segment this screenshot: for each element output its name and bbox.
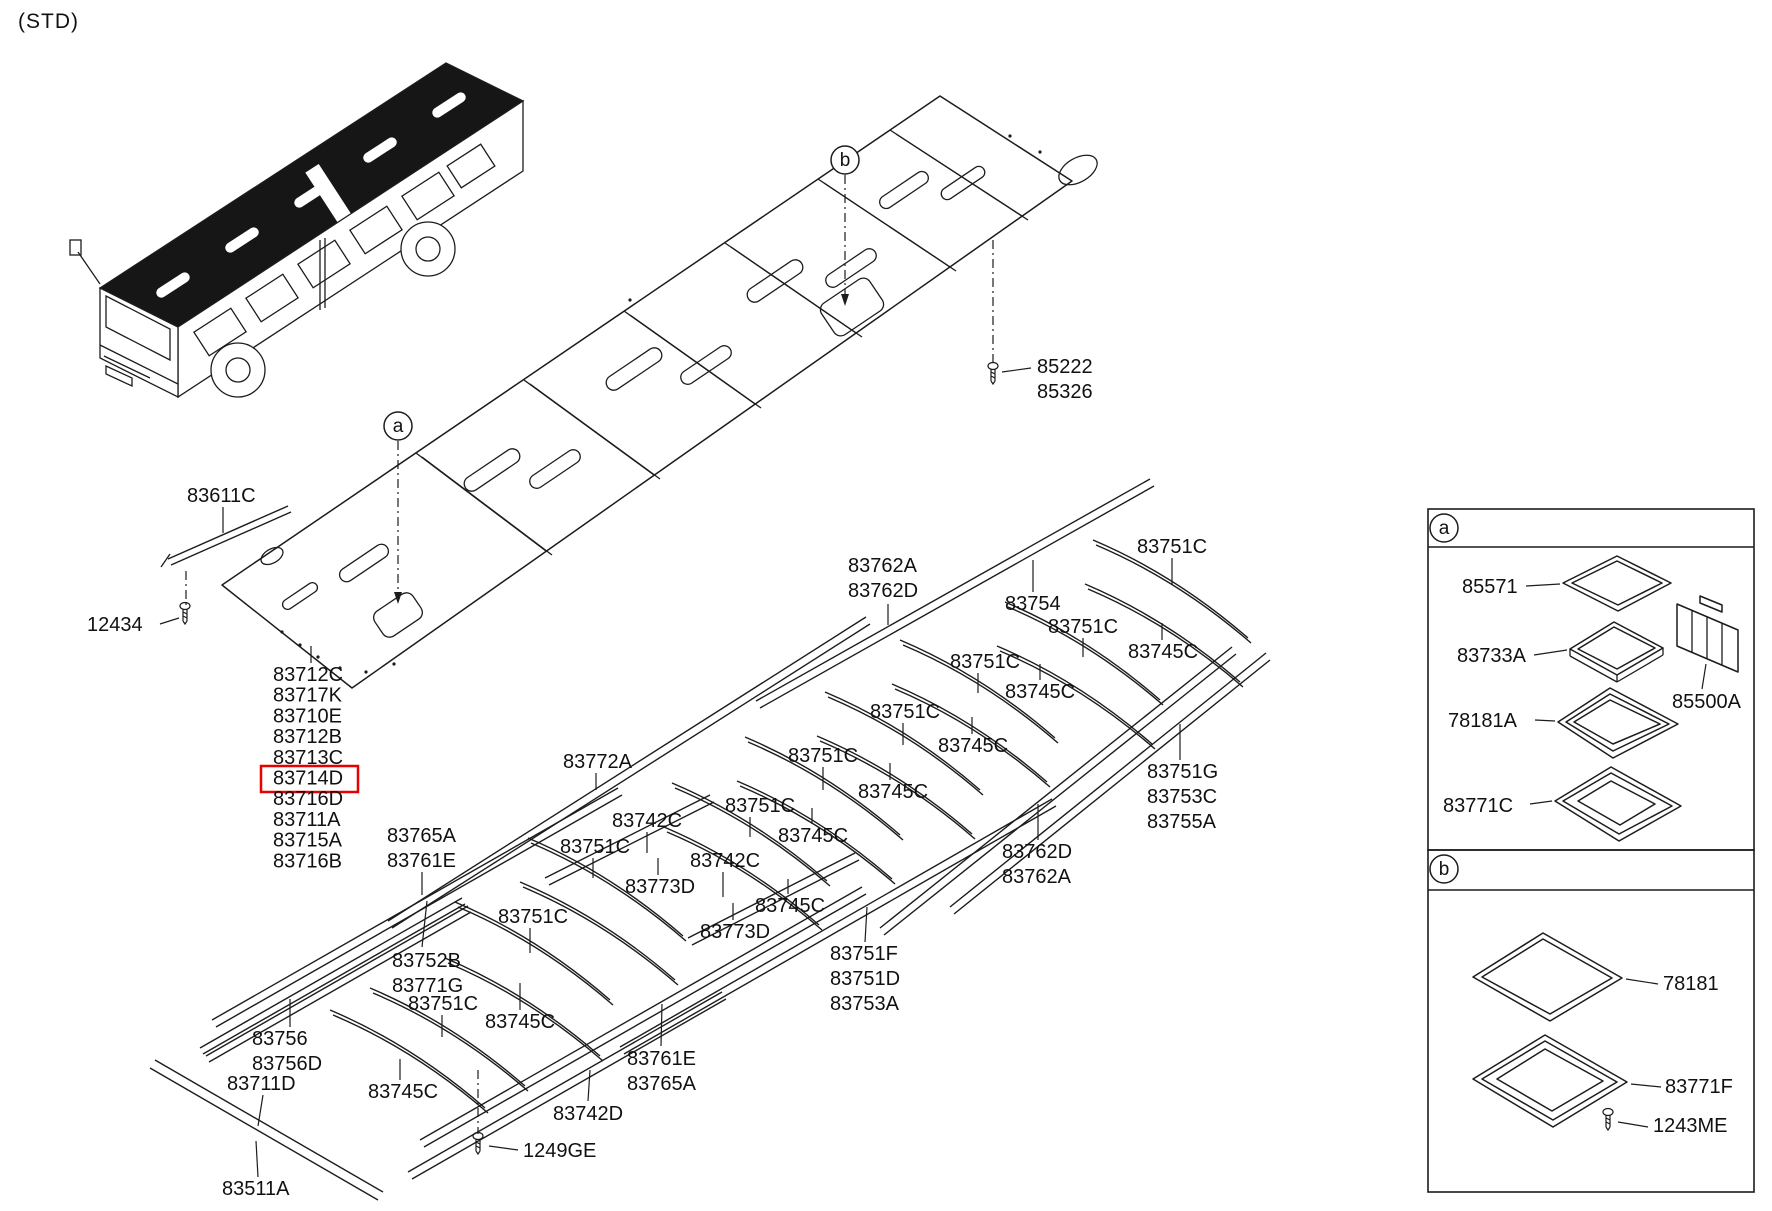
label-85571[interactable]: 85571	[1462, 576, 1518, 598]
parts-list: 83712C83717K83710E83712B83713C83714D8371…	[261, 646, 358, 872]
panel-slot	[744, 257, 805, 305]
label-83751G-83753C-83755A[interactable]: 83751G83753C83755A	[1147, 761, 1218, 833]
detail-box-b	[1428, 850, 1754, 1192]
label-83762D-83762A[interactable]: 83762D83762A	[1002, 841, 1072, 888]
label-83761E-83765A[interactable]: 83761E83765A	[627, 1048, 697, 1095]
panel-outline	[1482, 1041, 1617, 1120]
rivet-dot	[316, 655, 319, 658]
parts-list-item-83714D[interactable]: 83714D	[273, 768, 343, 790]
panel-slot	[281, 581, 320, 612]
label-83751C-8[interactable]: 83751C	[498, 906, 568, 928]
panel-outline	[1700, 596, 1722, 612]
rail-line	[168, 506, 288, 559]
bus-illustration	[70, 63, 523, 397]
label-85500A[interactable]: 85500A	[1672, 691, 1742, 713]
parts-list-item-83716B[interactable]: 83716B	[273, 850, 342, 872]
rivet-dot	[280, 630, 283, 633]
leader-line	[1618, 1122, 1648, 1127]
panel-outline	[1473, 1035, 1627, 1127]
label-83745C-8[interactable]: 83745C	[368, 1081, 438, 1103]
label-83745C-5[interactable]: 83745C	[778, 825, 848, 847]
label-83745C-7[interactable]: 83745C	[485, 1011, 555, 1033]
rivet-dot	[1038, 150, 1041, 153]
leader-line	[1530, 801, 1552, 804]
leader-line	[160, 618, 179, 624]
label-12434[interactable]: 12434	[87, 614, 143, 636]
label-83773D-1[interactable]: 83773D	[625, 876, 695, 898]
callout-arrowhead	[841, 294, 849, 306]
leader-line	[588, 1070, 590, 1101]
label-83756-83756D[interactable]: 8375683756D	[252, 1028, 322, 1075]
parts-list-item-83717K[interactable]: 83717K	[273, 685, 343, 707]
panel-outline	[1574, 700, 1660, 744]
rail-line	[171, 512, 291, 565]
panel-outline	[1572, 561, 1662, 605]
panel-slot	[678, 343, 734, 387]
label-83742C-1[interactable]: 83742C	[612, 810, 682, 832]
panel-outline	[1570, 622, 1663, 675]
leader-line	[489, 1146, 518, 1150]
label-83611C[interactable]: 83611C	[187, 485, 256, 507]
leader-line	[1002, 368, 1031, 372]
label-83745C-1[interactable]: 83745C	[1128, 641, 1198, 663]
leader-line	[865, 907, 867, 942]
label-83771C[interactable]: 83771C	[1443, 795, 1513, 817]
bus-mirror	[70, 240, 81, 255]
label-83773D-2[interactable]: 83773D	[700, 921, 770, 943]
panel-slot	[371, 590, 426, 641]
leader-line	[661, 1004, 662, 1046]
label-83751C-6[interactable]: 83751C	[725, 795, 795, 817]
parts-diagram-page: (STD)	[0, 0, 1772, 1211]
detail-line	[630, 315, 761, 408]
screw-85222-icon	[988, 363, 998, 385]
detail-line	[1570, 656, 1617, 682]
leader-line	[1626, 979, 1658, 984]
label-83751C-7[interactable]: 83751C	[560, 836, 630, 858]
callout-letter-a: a	[1439, 518, 1450, 539]
label-83765A-83761E[interactable]: 83765A83761E	[387, 825, 457, 872]
label-83745C-3[interactable]: 83745C	[938, 735, 1008, 757]
label-83762A-83762D[interactable]: 83762A83762D	[848, 555, 918, 602]
callout-letter-a: a	[393, 416, 404, 437]
exploded-parts-diagram: abab 83611C12434852228532683762A83762D83…	[0, 0, 1772, 1211]
roof-bow	[1088, 589, 1243, 687]
parts-list-item-83713C[interactable]: 83713C	[273, 747, 343, 769]
panel-slot	[939, 164, 987, 202]
label-83754[interactable]: 83754	[1005, 593, 1061, 615]
callout-letter-b: b	[840, 150, 851, 171]
rivet-dot	[628, 298, 631, 301]
parts-list-item-83712B[interactable]: 83712B	[273, 726, 342, 748]
bus-mirror-arm	[78, 252, 100, 284]
label-83772A[interactable]: 83772A	[563, 751, 633, 773]
panel-outline	[1473, 933, 1622, 1021]
label-83742C-2[interactable]: 83742C	[690, 850, 760, 872]
leader-line	[1526, 584, 1560, 586]
label-1243ME[interactable]: 1243ME	[1653, 1115, 1728, 1137]
label-83742D[interactable]: 83742D	[553, 1103, 623, 1125]
leader-line	[1534, 650, 1567, 655]
parts-list-item-83710E[interactable]: 83710E	[273, 705, 342, 727]
panel-hole	[1054, 149, 1102, 191]
panel-slot	[603, 345, 664, 393]
detail-line	[422, 457, 552, 555]
rivet-dot	[392, 662, 395, 665]
panel-slot	[527, 447, 583, 491]
label-85222-85326[interactable]: 8522285326	[1037, 356, 1093, 403]
label-83751C-2[interactable]: 83751C	[1048, 616, 1118, 638]
label-83751F-83751D-83753A[interactable]: 83751F83751D83753A	[830, 943, 900, 1015]
parts-list-item-83715A[interactable]: 83715A	[273, 830, 343, 852]
parts-list-item-83716D[interactable]: 83716D	[273, 788, 343, 810]
parts-list-item-83711A[interactable]: 83711A	[273, 809, 341, 831]
label-83751C-1[interactable]: 83751C	[1137, 536, 1207, 558]
label-83745C-2[interactable]: 83745C	[1005, 681, 1075, 703]
leader-line	[256, 1141, 258, 1177]
label-1249GE[interactable]: 1249GE	[523, 1140, 596, 1162]
panel-slot	[461, 446, 522, 494]
rail-line	[950, 653, 1266, 907]
label-83733A[interactable]: 83733A	[1457, 645, 1527, 667]
leader-line	[1702, 664, 1706, 689]
panel-slot	[337, 542, 391, 585]
roof-bow	[1096, 545, 1251, 643]
detail-line	[1617, 655, 1663, 682]
panel-outline	[1578, 627, 1655, 669]
panel-outline	[1578, 781, 1655, 825]
leader-line	[1535, 720, 1555, 721]
label-83751C-4[interactable]: 83751C	[870, 701, 940, 723]
leader-line	[1631, 1084, 1661, 1087]
label-78181A[interactable]: 78181A	[1448, 710, 1518, 732]
rail-line	[760, 486, 1154, 708]
label-83751C-3[interactable]: 83751C	[950, 651, 1020, 673]
label-83771F[interactable]: 83771F	[1665, 1076, 1733, 1098]
roof-bow	[523, 887, 678, 985]
rivet-dot	[298, 643, 301, 646]
screw-1243ME-icon	[1603, 1109, 1613, 1131]
label-83711D[interactable]: 83711D	[227, 1073, 296, 1095]
rivet-dot	[1008, 134, 1011, 137]
panel-outline	[1563, 773, 1672, 834]
detail-line	[824, 183, 956, 271]
label-83745C-4[interactable]: 83745C	[858, 781, 928, 803]
rail-line	[200, 898, 462, 1048]
screw-12434-icon	[180, 603, 190, 625]
callout-arrowhead	[394, 592, 402, 604]
detail-boxes: abab	[384, 146, 1754, 1192]
label-83751C-5[interactable]: 83751C	[788, 745, 858, 767]
callout-letter-b: b	[1439, 859, 1450, 880]
rivet-dot	[364, 670, 367, 673]
panel-outline	[1482, 939, 1612, 1014]
label-78181[interactable]: 78181	[1663, 973, 1719, 995]
parts-list-item-83712C[interactable]: 83712C	[273, 664, 343, 686]
label-83752B-83771G[interactable]: 83752B83771G	[392, 950, 463, 997]
panel-outline	[1563, 556, 1671, 611]
panel-slot	[877, 169, 931, 211]
label-83745C-6[interactable]: 83745C	[755, 895, 825, 917]
panel-outline	[1555, 767, 1681, 841]
detail-line	[161, 554, 170, 567]
panel-hole	[258, 544, 286, 568]
label-83511A[interactable]: 83511A	[222, 1178, 290, 1200]
